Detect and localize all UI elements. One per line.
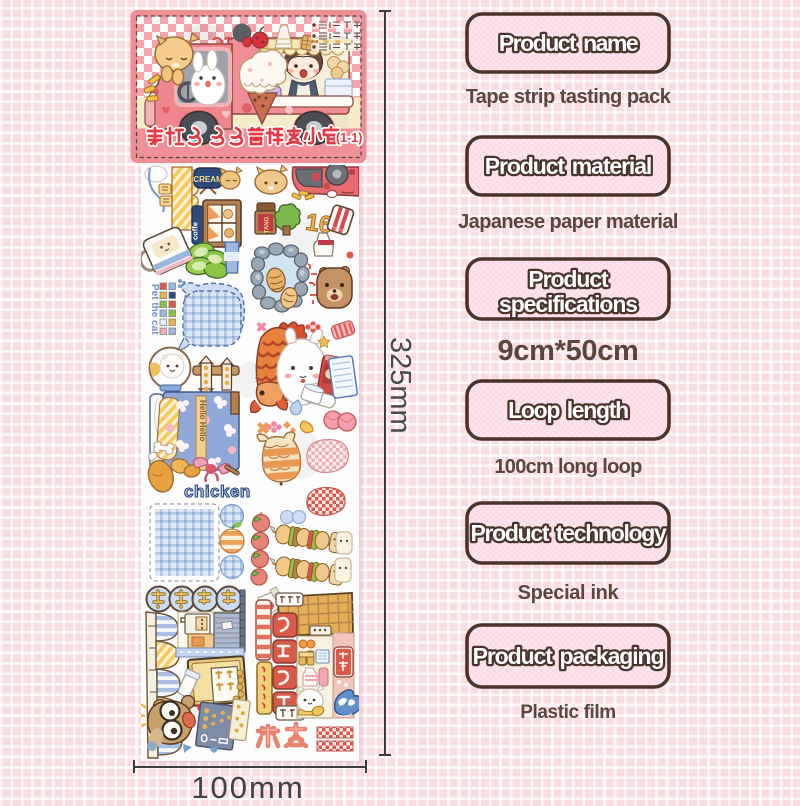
svg-text:Loop length: Loop length [508, 397, 628, 423]
svg-text:CREAM: CREAM [193, 175, 223, 184]
svg-text:Product material: Product material [485, 153, 651, 179]
svg-text:Product: Product [528, 266, 609, 292]
svg-text:Product name: Product name [499, 30, 638, 56]
svg-text:chicken: chicken [184, 482, 251, 501]
svg-text:(1-1): (1-1) [336, 131, 362, 145]
svg-text:Product technology: Product technology [470, 520, 667, 546]
svg-text:TANG: TANG [265, 216, 271, 233]
svg-text:coffe: coffe [191, 222, 200, 240]
svg-text:Product packaging: Product packaging [473, 643, 664, 669]
svg-text:Hello Hello: Hello Hello [198, 400, 207, 441]
svg-text:specifications: specifications [499, 291, 637, 317]
svg-text:Pet the cat: Pet the cat [149, 284, 160, 335]
